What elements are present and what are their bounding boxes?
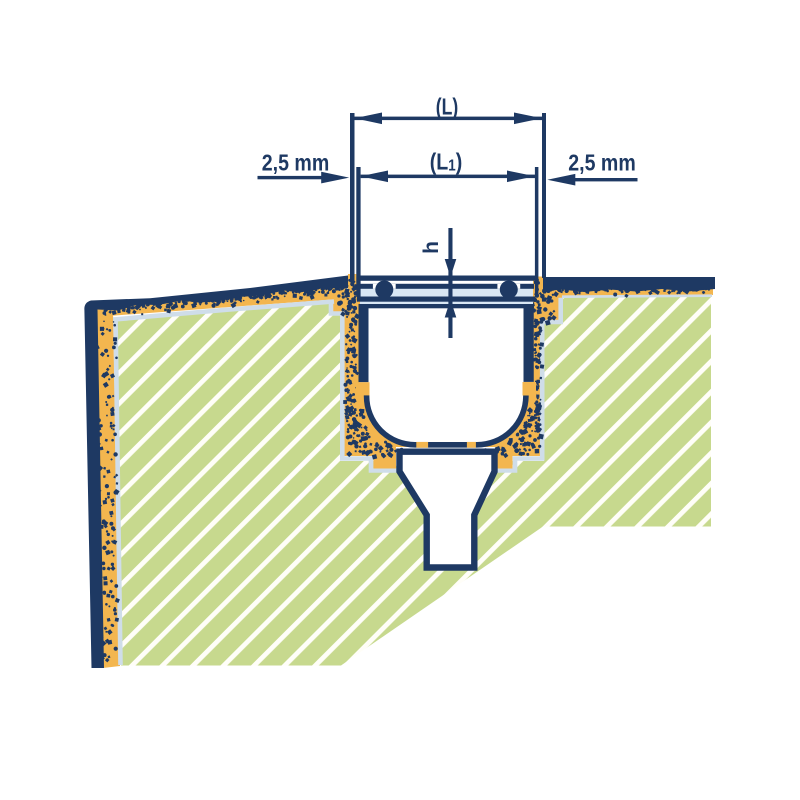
svg-text:h: h	[420, 241, 443, 254]
svg-text:(L1): (L1)	[430, 149, 463, 175]
svg-text:2,5 mm: 2,5 mm	[262, 150, 330, 176]
svg-text:2,5 mm: 2,5 mm	[568, 150, 636, 176]
svg-text:(L): (L)	[436, 94, 459, 120]
